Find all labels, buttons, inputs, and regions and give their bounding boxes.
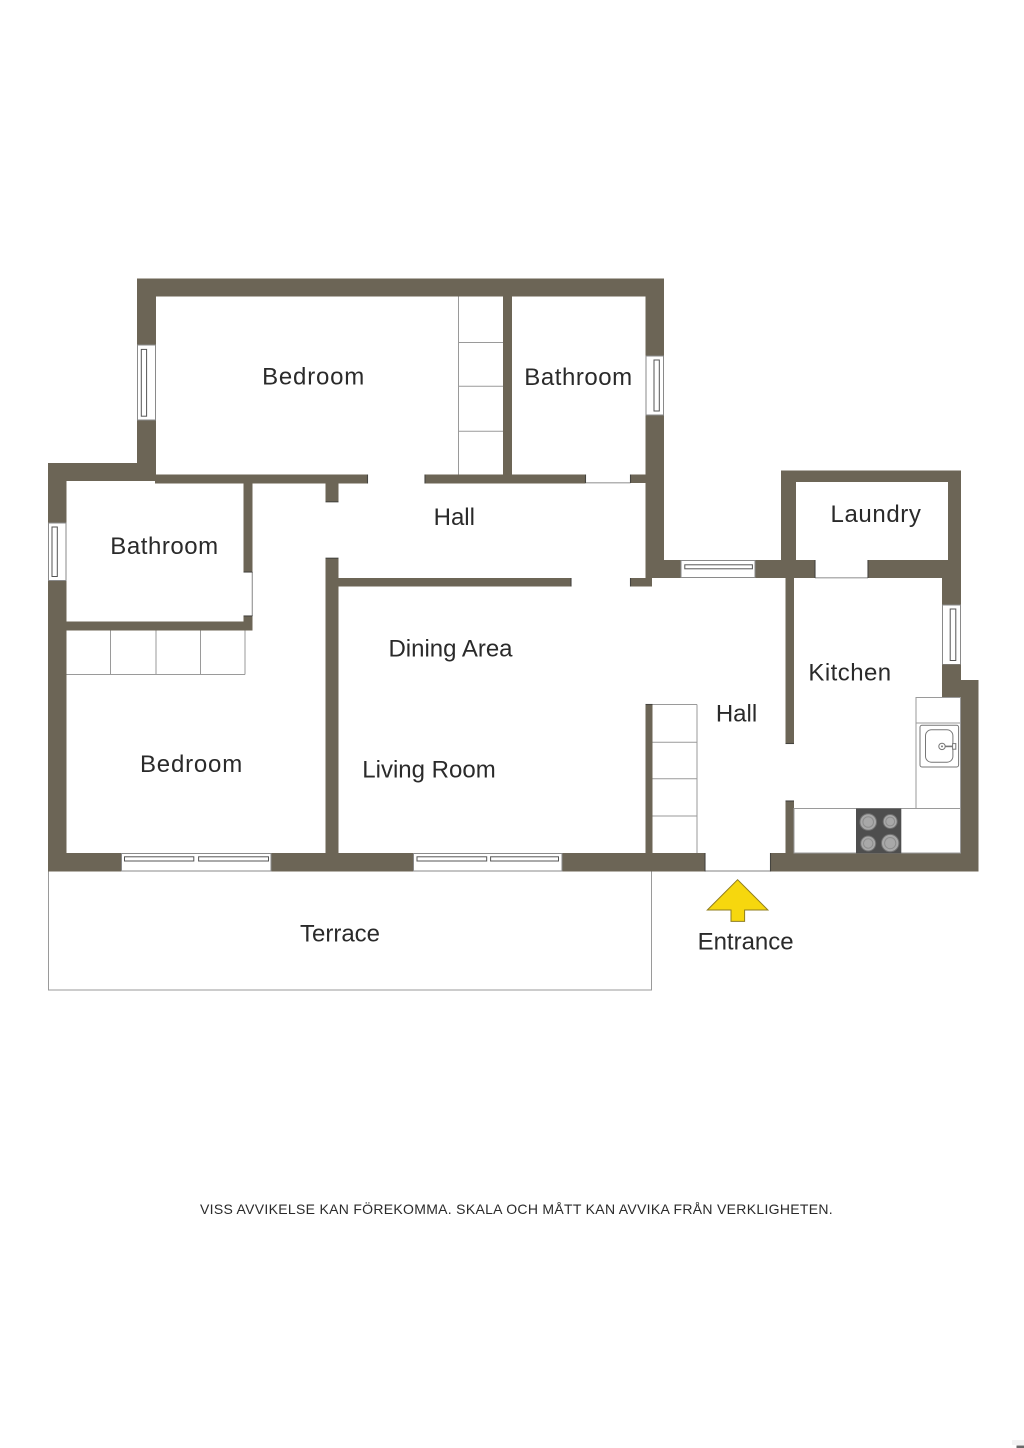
svg-text:Living Room: Living Room bbox=[362, 757, 495, 784]
svg-text:Bathroom: Bathroom bbox=[524, 364, 632, 391]
svg-text:Kitchen: Kitchen bbox=[808, 660, 891, 687]
svg-text:Bedroom: Bedroom bbox=[140, 751, 243, 778]
svg-text:Entrance: Entrance bbox=[698, 929, 794, 956]
svg-text:Bedroom: Bedroom bbox=[262, 364, 365, 391]
svg-text:Hall: Hall bbox=[716, 701, 757, 728]
svg-text:Terrace: Terrace bbox=[300, 921, 380, 948]
svg-text:VISS AVVIKELSE KAN FÖREKOMMA.: VISS AVVIKELSE KAN FÖREKOMMA. SKALA OCH … bbox=[200, 1200, 833, 1217]
svg-text:Hall: Hall bbox=[434, 504, 475, 531]
svg-text:Dining Area: Dining Area bbox=[388, 636, 513, 663]
svg-text:Bathroom: Bathroom bbox=[110, 533, 218, 560]
svg-text:Laundry: Laundry bbox=[831, 501, 922, 528]
